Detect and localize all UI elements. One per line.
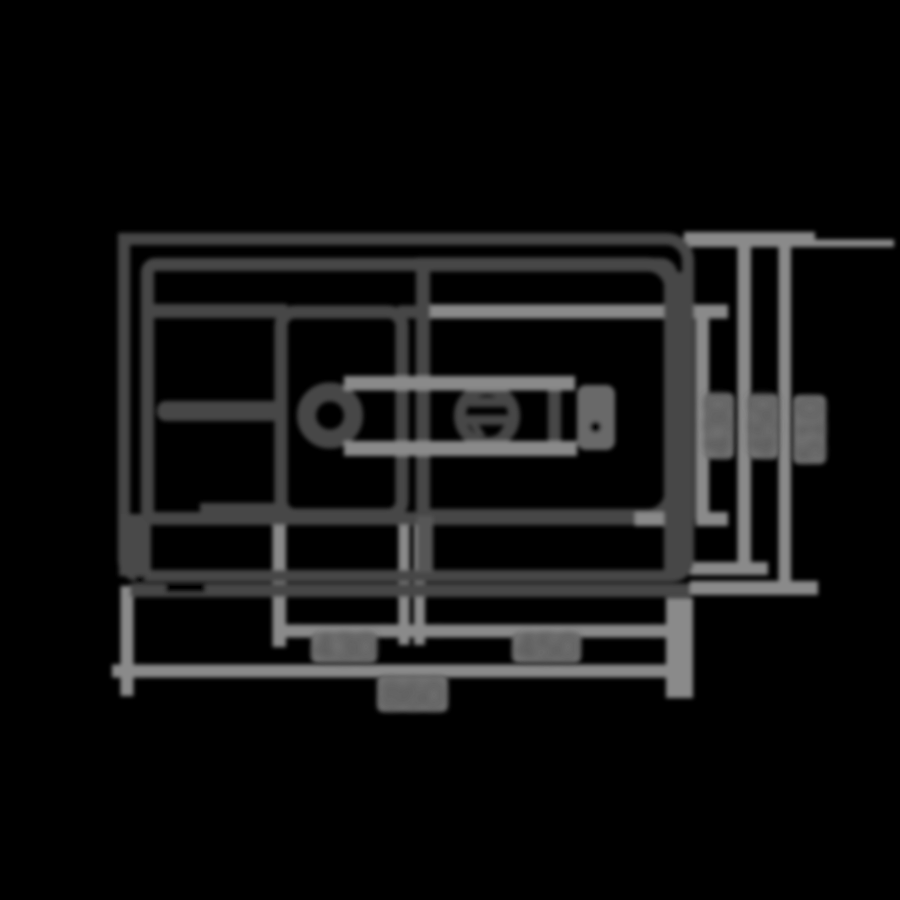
svg-text:450: 450 xyxy=(743,394,785,457)
svg-text:430: 430 xyxy=(698,394,740,457)
svg-text:510: 510 xyxy=(790,398,832,461)
svg-text:860: 860 xyxy=(381,675,444,717)
svg-text:430: 430 xyxy=(313,627,376,669)
svg-text:450: 450 xyxy=(515,627,578,669)
